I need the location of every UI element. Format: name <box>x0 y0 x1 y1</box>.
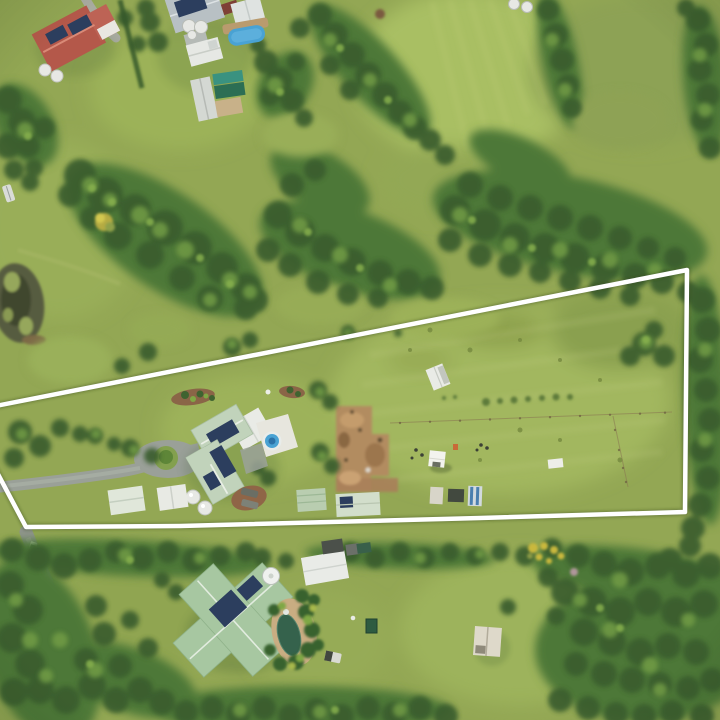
aerial-photo-canvas <box>0 0 720 720</box>
vignette-overlay <box>0 0 720 720</box>
aerial-photo <box>0 0 720 720</box>
